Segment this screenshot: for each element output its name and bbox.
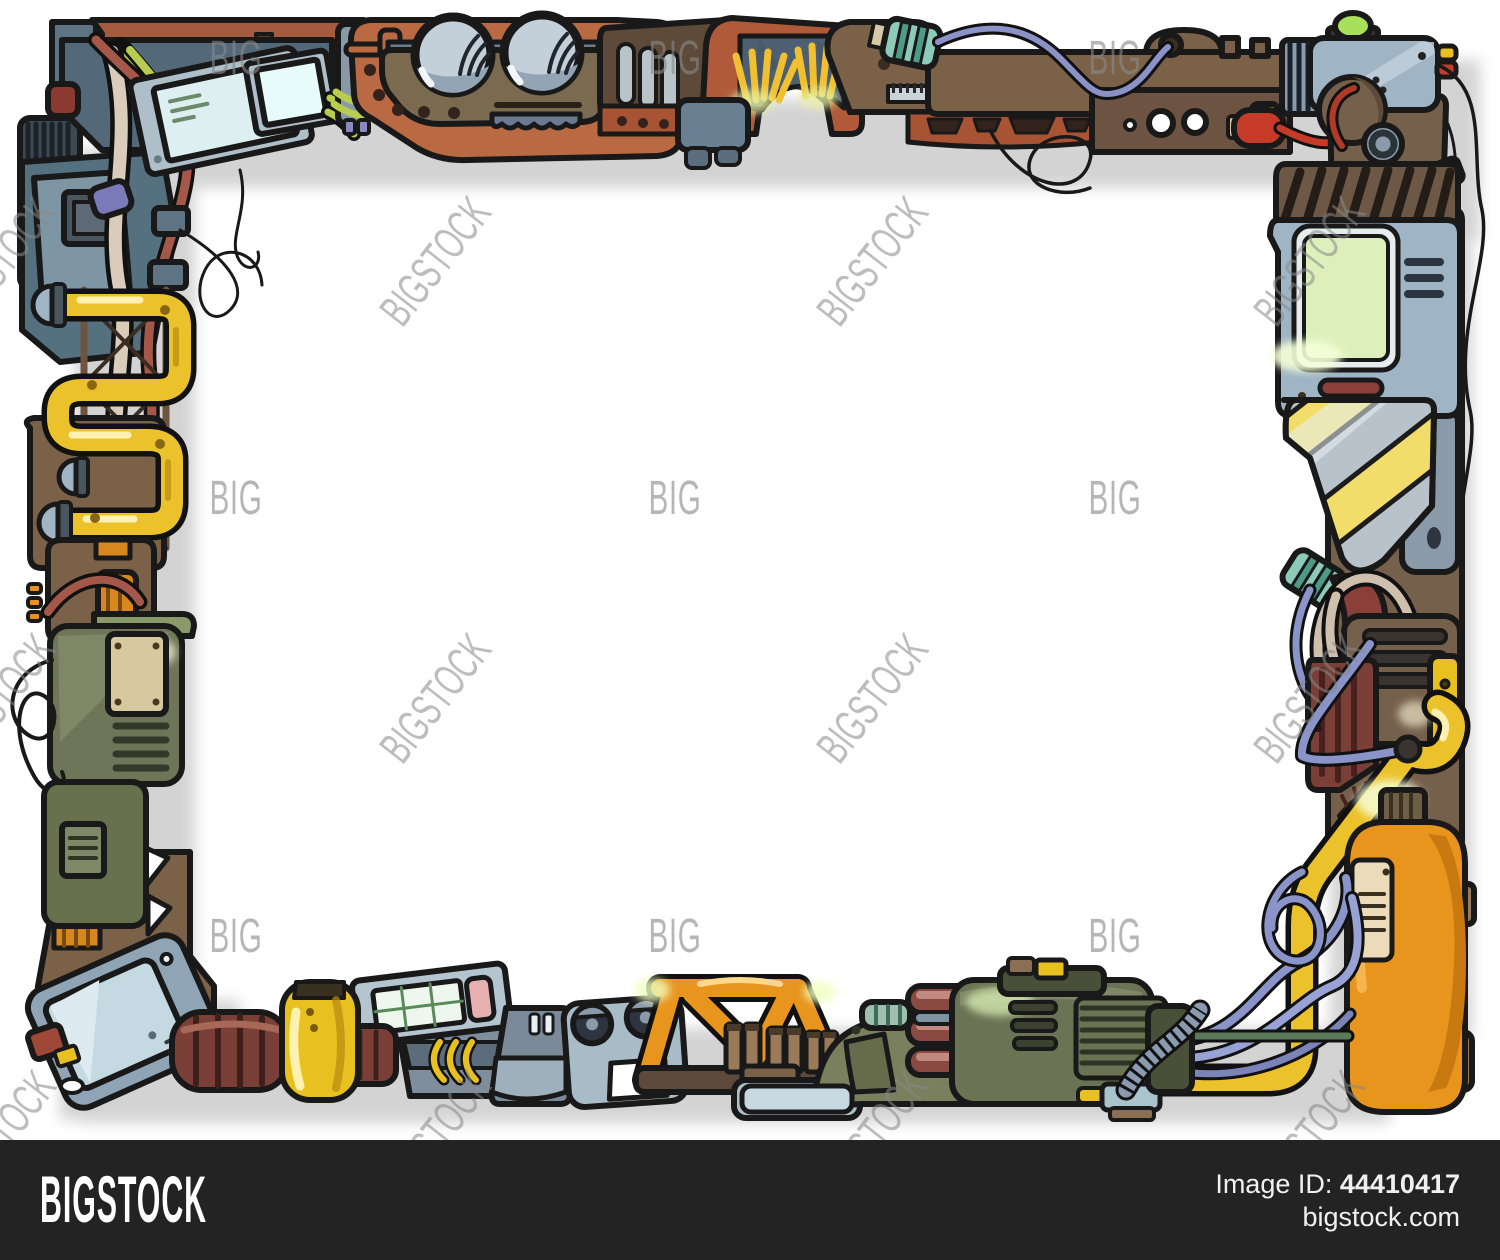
- svg-text:bigstock.com: bigstock.com: [1302, 1202, 1460, 1232]
- svg-text:BIG: BIG: [648, 472, 701, 525]
- svg-text:BIG: BIG: [1088, 32, 1141, 85]
- svg-text:BIG: BIG: [209, 910, 262, 963]
- svg-text:Image ID: 44410417: Image ID: 44410417: [1215, 1169, 1460, 1199]
- svg-text:BIG: BIG: [209, 32, 262, 85]
- svg-text:BIG: BIG: [648, 32, 701, 85]
- svg-text:BIG: BIG: [1088, 472, 1141, 525]
- svg-text:BIG: BIG: [209, 472, 262, 525]
- svg-text:BIG: BIG: [648, 910, 701, 963]
- svg-text:BIGSTOCK: BIGSTOCK: [40, 1163, 207, 1236]
- svg-text:BIG: BIG: [1088, 910, 1141, 963]
